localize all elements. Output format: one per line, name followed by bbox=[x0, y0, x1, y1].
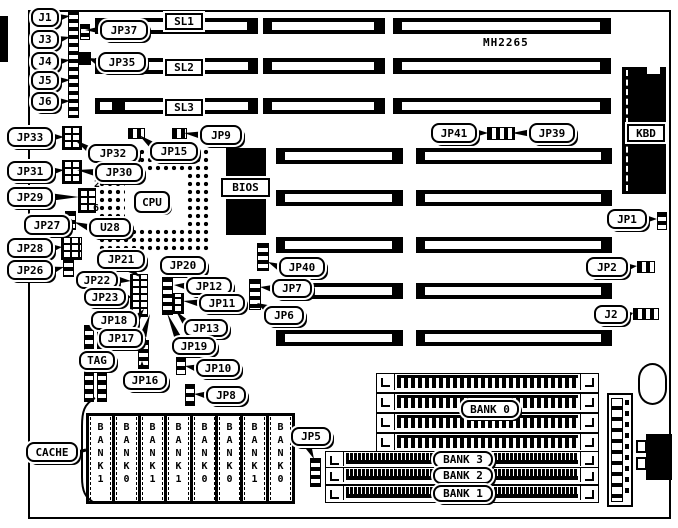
jp11-callout: JP11 bbox=[199, 294, 245, 312]
jp8-pointer-line bbox=[194, 392, 206, 399]
jp39-pointer-line bbox=[512, 130, 529, 137]
bank1-label: BANK 1 bbox=[433, 485, 493, 502]
jp9-pointer-line bbox=[184, 132, 200, 139]
jp29-callout: JP29 bbox=[7, 187, 53, 207]
jp40-callout: JP40 bbox=[279, 257, 325, 277]
tag-callout: TAG bbox=[79, 351, 115, 370]
jp20-callout: JP20 bbox=[160, 256, 206, 275]
j6-callout: J6 bbox=[31, 92, 59, 111]
j5-pointer-line bbox=[59, 77, 70, 84]
jp16-pointer-line bbox=[139, 361, 146, 371]
motherboard-diagram: MH2265 BANK1BANK0BANK1BANK1BANK0BANK0BAN… bbox=[0, 0, 678, 528]
jp7-pointer-line bbox=[260, 285, 272, 292]
jp5-pointer-line bbox=[305, 445, 314, 459]
jp28-callout: JP28 bbox=[7, 238, 53, 258]
j3-pointer-line bbox=[58, 36, 70, 43]
j4-callout: J4 bbox=[31, 52, 59, 71]
cache-brace-tick bbox=[78, 450, 86, 452]
jp22-callout: JP22 bbox=[76, 271, 118, 289]
j5-callout: J5 bbox=[31, 71, 59, 90]
j1-pointer-line bbox=[59, 14, 70, 21]
jp2-callout: JP2 bbox=[586, 257, 628, 277]
j4-pointer-line bbox=[59, 58, 70, 65]
jp33-pointer-line bbox=[53, 134, 64, 141]
cache-callout: CACHE bbox=[26, 442, 78, 462]
jp21-callout: JP21 bbox=[97, 250, 145, 269]
u28-callout: U28 bbox=[89, 218, 131, 237]
jp23-callout: JP23 bbox=[84, 288, 126, 306]
jp18-callout: JP18 bbox=[91, 311, 137, 330]
jp27-callout: JP27 bbox=[24, 215, 70, 235]
jp37-pointer-line bbox=[85, 27, 100, 34]
bank2-label: BANK 2 bbox=[433, 467, 493, 484]
bank3-label: BANK 3 bbox=[433, 451, 493, 468]
jp6-callout: JP6 bbox=[264, 306, 304, 325]
jp5-callout: JP5 bbox=[291, 427, 331, 446]
jp16-callout: JP16 bbox=[123, 371, 167, 390]
j3-callout: J3 bbox=[31, 30, 59, 49]
jp41-callout: JP41 bbox=[431, 123, 477, 143]
jp10-callout: JP10 bbox=[196, 359, 240, 377]
jp37-callout: JP37 bbox=[100, 20, 148, 40]
bios-label: BIOS bbox=[221, 178, 270, 197]
jp12-pointer-line bbox=[174, 283, 186, 290]
bank0-label: BANK 0 bbox=[461, 400, 519, 418]
jp10-pointer-line bbox=[185, 365, 197, 372]
jp26-callout: JP26 bbox=[7, 260, 53, 280]
jp22-pointer-line bbox=[118, 277, 131, 284]
jp2-pointer-line bbox=[628, 264, 637, 271]
jp41-pointer-line bbox=[477, 130, 488, 137]
jp13-callout: JP13 bbox=[184, 319, 228, 337]
jp23-pointer-line bbox=[126, 294, 131, 301]
j6-pointer-line bbox=[59, 98, 70, 105]
jp19-callout: JP19 bbox=[172, 337, 216, 355]
j2-callout: J2 bbox=[594, 305, 628, 324]
jp32-callout: JP32 bbox=[88, 144, 138, 163]
jp28-pointer-line bbox=[53, 245, 62, 252]
jp26-pointer-line bbox=[52, 267, 64, 274]
jp12-callout: JP12 bbox=[186, 277, 232, 295]
jp9-callout: JP9 bbox=[200, 125, 242, 145]
j1-callout: J1 bbox=[31, 8, 59, 27]
jp15-callout: JP15 bbox=[150, 142, 198, 161]
jp33-callout: JP33 bbox=[7, 127, 53, 147]
jp31-pointer-line bbox=[53, 168, 64, 175]
jp11-pointer-line bbox=[183, 300, 199, 307]
jp39-callout: JP39 bbox=[529, 123, 575, 143]
cpu-label: CPU bbox=[134, 191, 170, 213]
sl3-label: SL3 bbox=[165, 99, 203, 116]
u28-pointer-line bbox=[74, 222, 90, 231]
jp1-callout: JP1 bbox=[607, 209, 647, 229]
sl2-label: SL2 bbox=[165, 59, 203, 76]
jp8-callout: JP8 bbox=[206, 386, 246, 404]
jp30-callout: JP30 bbox=[95, 163, 143, 182]
sl1-label: SL1 bbox=[165, 13, 203, 30]
jp1-pointer-line bbox=[647, 216, 657, 223]
jp35-callout: JP35 bbox=[98, 52, 146, 72]
jp7-callout: JP7 bbox=[272, 279, 312, 298]
jp30-pointer-line bbox=[77, 169, 95, 176]
kbd-label: KBD bbox=[627, 124, 665, 142]
jp31-callout: JP31 bbox=[7, 161, 53, 181]
jp17-callout: JP17 bbox=[99, 329, 143, 348]
jp29-pointer-line bbox=[53, 194, 79, 201]
